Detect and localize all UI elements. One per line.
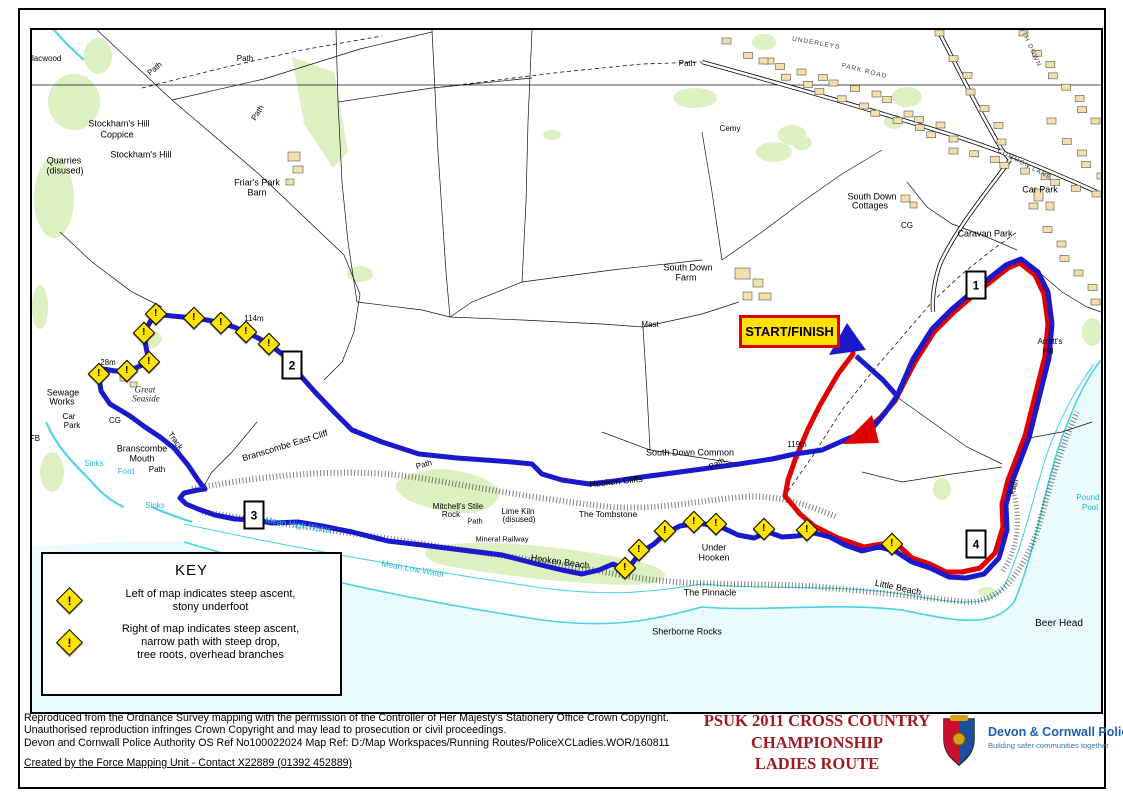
map-label: Mouth [129,455,154,464]
warning-diamond-icon: ! [235,321,258,344]
map-label: Caravan Park [957,230,1012,239]
map-label: Path [415,459,433,471]
map-label: Path [146,61,164,78]
map-label: Pound [1076,494,1099,502]
start-finish-badge: START/FINISH [739,315,840,348]
key-item: ! Left of map indicates steep ascent, st… [43,588,340,614]
map-label: Sinks [84,460,104,468]
map-label: Path [467,517,482,525]
map-area: START/FINISH KEY ! Left of map indicates… [30,28,1103,714]
warning-diamond-icon: ! [210,312,233,335]
map-label: (disused) [46,167,83,176]
map-label: Farm [676,274,697,283]
warning-diamond-icon: ! [705,513,728,536]
warning-diamond-icon: ! [796,519,819,542]
map-label: Friar's Park [234,179,280,188]
map-label: The Tombstone [579,510,637,519]
warning-diamond-icon: ! [133,322,156,345]
key-title: KEY [43,562,340,579]
created-by-text: Created by the Force Mapping Unit - Cont… [24,757,352,769]
map-label: Mast [641,321,658,329]
police-logo: Devon & Cornwall Police Building safer c… [938,715,1123,769]
warning-diamond-icon: ! [654,520,677,543]
map-label: Car [63,413,76,421]
map-label: Mineral Railway [476,535,529,543]
map-label: Path [237,55,253,63]
map-label: Path [708,457,726,472]
map-label: FB [30,435,40,443]
warning-diamond-icon: ! [614,557,637,580]
map-label: Sherborne Rocks [652,628,722,637]
warning-diamond-icon: ! [183,307,206,330]
police-logo-text: Devon & Cornwall Police Building safer c… [988,725,1123,750]
map-label: Path [1008,479,1020,496]
warning-diamond-icon: ! [145,303,168,326]
route-marker: 3 [244,501,265,530]
route-marker: 1 [966,271,987,300]
map-label: Seaside [132,395,160,404]
map-label: Sinks [145,502,165,510]
map-label: (disused) [503,516,536,524]
map-label: Stockham's Hill [88,120,149,129]
map-label: Mean High Water [265,516,331,535]
key-item: ! Right of map indicates steep ascent, n… [43,623,340,662]
map-title: PSUK 2011 CROSS COUNTRY CHAMPIONSHIP LAD… [678,710,956,775]
map-label: Stockham's Hill [110,151,171,160]
route-marker: 4 [966,530,987,559]
map-label: Hooken Beach [530,553,590,570]
map-label: Blacwood [30,55,61,63]
warning-diamond-icon: ! [43,633,95,652]
map-label: Path [149,466,165,474]
warning-diamond-icon: ! [258,333,281,356]
map-label: Cottages [852,202,888,211]
map-label: CG [109,417,121,425]
map-label: Hooken [698,554,729,563]
warning-diamond-icon: ! [138,351,161,374]
map-label: Branscombe East Cliff [241,429,329,464]
warning-diamond-icon: ! [753,518,776,541]
map-label: Track [166,431,184,452]
map-label: Barn [247,189,266,198]
map-label: CG [901,222,913,230]
copyright-text: Reproduced from the Ordnance Survey mapp… [24,712,670,749]
map-label: Mean Low Water [381,559,445,578]
map-label: Pool [1082,504,1098,512]
map-label: Arratt's [1037,338,1062,346]
key-item-text: Left of map indicates steep ascent, ston… [95,588,340,614]
map-label: Ford [118,468,134,476]
map-label: Car Park [1022,186,1058,195]
map-key: KEY ! Left of map indicates steep ascent… [41,552,342,696]
map-label: Under [702,544,727,553]
warning-diamond-icon: ! [116,360,139,383]
map-label: Branscombe [117,445,168,454]
warning-diamond-icon: ! [628,539,651,562]
map-label: COMMON LANE [996,148,1052,182]
map-label: UNDERLEYS [791,37,840,52]
key-item-text: Right of map indicates steep ascent, nar… [95,623,340,662]
police-org-name: Devon & Cornwall Police [988,725,1123,739]
map-label: Hooken Cliffs [589,475,643,490]
map-sheet: START/FINISH KEY ! Left of map indicates… [0,0,1123,794]
route-marker: 2 [282,351,303,380]
warning-diamond-icon: ! [43,591,95,610]
map-label: Park [64,422,80,430]
map-label: 119m [787,441,806,449]
map-label: Path [250,104,266,122]
map-label: Path [679,60,695,68]
map-label: The Pinnacle [684,589,737,598]
map-label: Cemy [720,125,741,133]
map-label: South Down Common [646,449,734,458]
police-crest-icon [938,715,980,769]
map-label: South Down [663,264,712,273]
map-overlay: START/FINISH KEY ! Left of map indicates… [32,30,1101,712]
map-label: Hill [1042,348,1053,356]
map-label: PARK ROAD [841,63,888,81]
map-label: Quarries [47,157,82,166]
map-label: Coppice [100,131,133,140]
map-label: Beer Head [1035,619,1083,629]
map-label: Works [49,398,74,407]
map-label: SOUTH DOWN [1012,28,1041,68]
warning-diamond-icon: ! [683,511,706,534]
map-label: Little Beach [874,579,922,598]
warning-diamond-icon: ! [881,533,904,556]
map-label: Rock [442,511,460,519]
police-tagline: Building safer communities together [988,741,1123,750]
